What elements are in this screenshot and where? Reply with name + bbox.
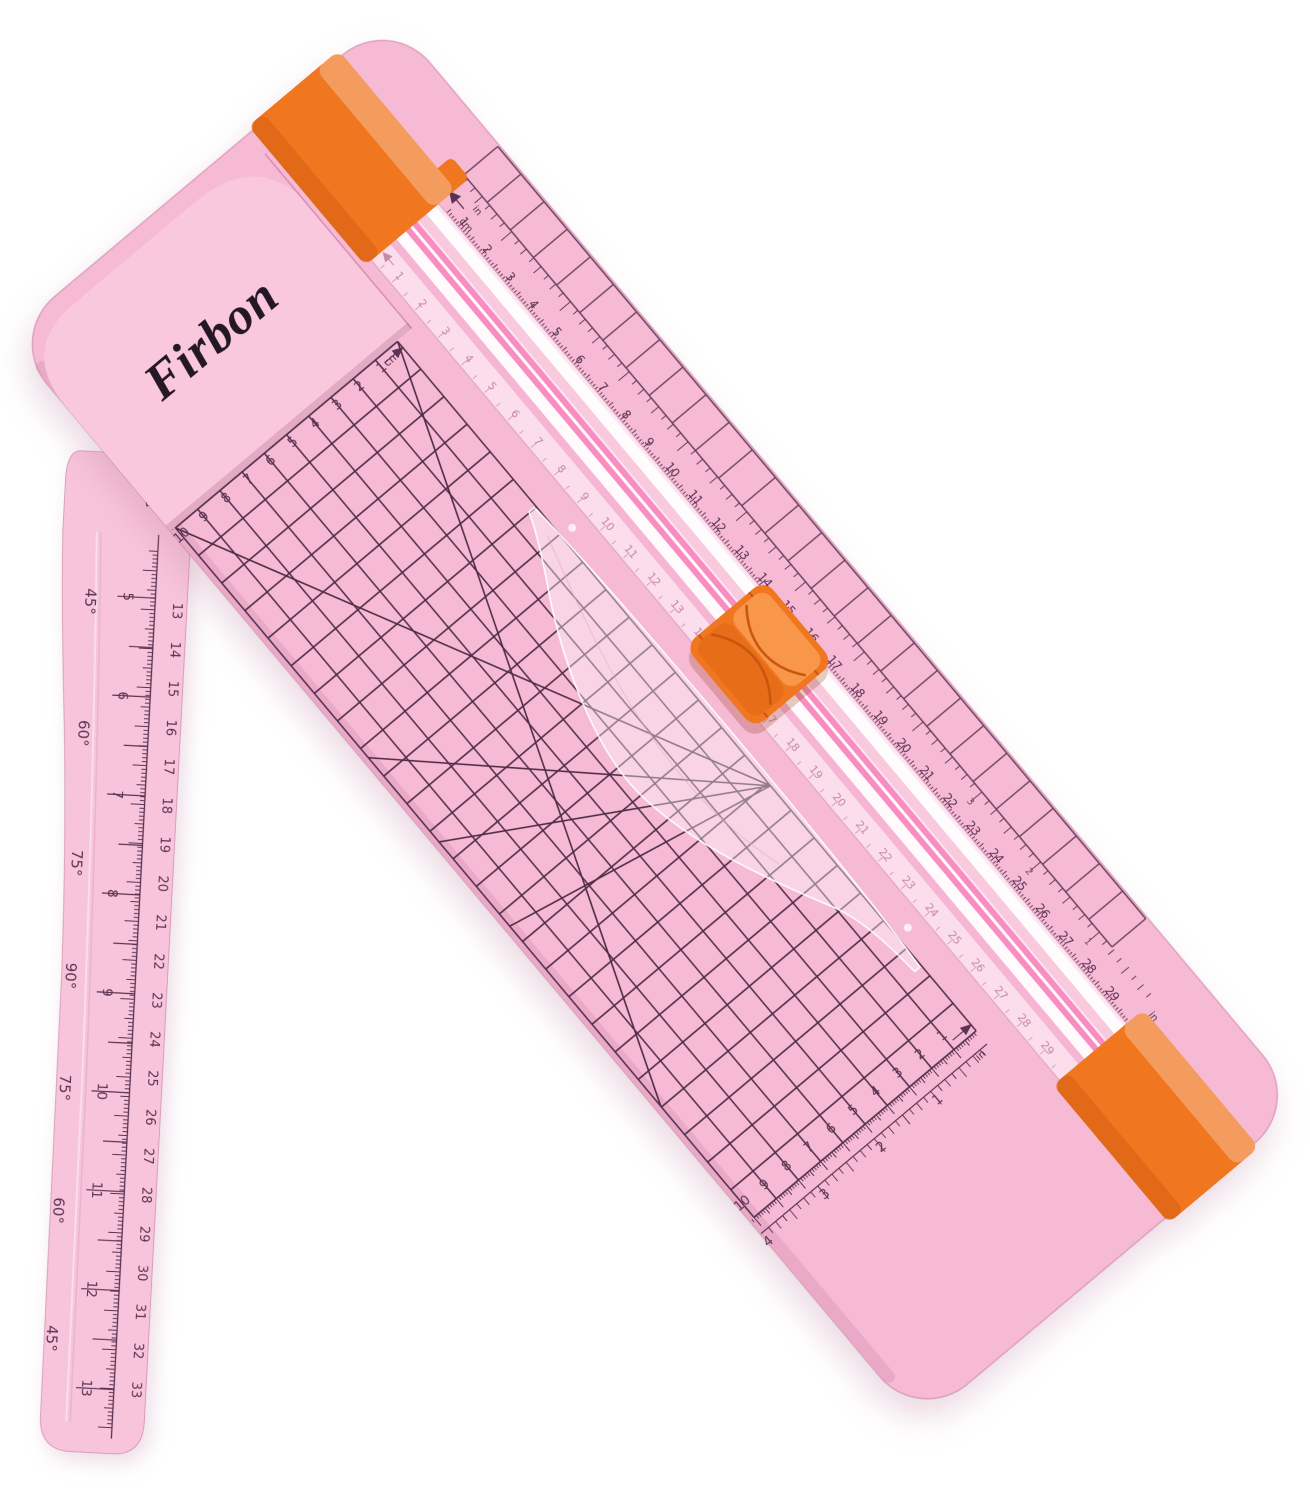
arm-cm-number: 14	[166, 641, 182, 658]
trimmer-scene: 45°60°75°90°75°60°45° 131415161718192021…	[0, 0, 1310, 1500]
product-photo: 45°60°75°90°75°60°45° 131415161718192021…	[0, 0, 1310, 1500]
arm-angle-label: 60°	[49, 1197, 68, 1224]
arm-inch-number: 8	[104, 889, 120, 898]
arm-cm-number: 29	[136, 1225, 152, 1242]
arm-cm-number: 19	[156, 836, 172, 853]
arm-angle-label: 75°	[55, 1074, 74, 1101]
arm-inch-number: 6	[114, 691, 130, 700]
arm-cm-number: 30	[134, 1264, 150, 1281]
arm-cm-number: 22	[150, 953, 166, 970]
arm-cm-number: 21	[152, 914, 168, 931]
arm-cm-number: 33	[128, 1381, 144, 1398]
swing-arm[interactable]: 45°60°75°90°75°60°45° 131415161718192021…	[15, 450, 195, 1455]
arm-cm-number: 18	[158, 797, 174, 814]
arm-cm-number: 13	[168, 602, 184, 619]
arm-angle-label: 75°	[67, 849, 86, 876]
arm-cm-number: 17	[160, 758, 176, 775]
arm-cm-number: 27	[140, 1148, 156, 1165]
arm-cm-number: 25	[144, 1070, 160, 1087]
arm-angle-label: 45°	[80, 588, 99, 615]
arm-cm-number: 15	[164, 680, 180, 697]
arm-body[interactable]	[15, 450, 195, 1455]
arm-inch-number: 7	[109, 790, 125, 799]
arm-angle-label: 45°	[42, 1325, 61, 1352]
arm-angle-label: 90°	[61, 962, 80, 989]
arm-inch-number: 12	[83, 1280, 100, 1298]
arm-cm-number: 20	[154, 875, 170, 892]
arm-inch-number: 5	[119, 592, 135, 601]
arm-cm-number: 28	[138, 1187, 154, 1204]
arm-cm-number: 23	[148, 992, 164, 1009]
arm-inch-number: 11	[88, 1181, 105, 1199]
arm-cm-number: 16	[162, 719, 178, 736]
arm-inch-number: 10	[93, 1082, 110, 1100]
arm-angle-label: 60°	[74, 720, 93, 747]
arm-cm-number: 26	[142, 1109, 158, 1126]
arm-inch-number: 9	[99, 988, 115, 997]
arm-cm-number: 24	[146, 1031, 162, 1048]
arm-cm-number: 32	[130, 1342, 146, 1359]
arm-inch-number: 13	[78, 1379, 95, 1397]
arm-cm-number: 31	[132, 1303, 148, 1320]
trimmer-body: 1234567891011121314151617181920212223242…	[1, 10, 1307, 1430]
